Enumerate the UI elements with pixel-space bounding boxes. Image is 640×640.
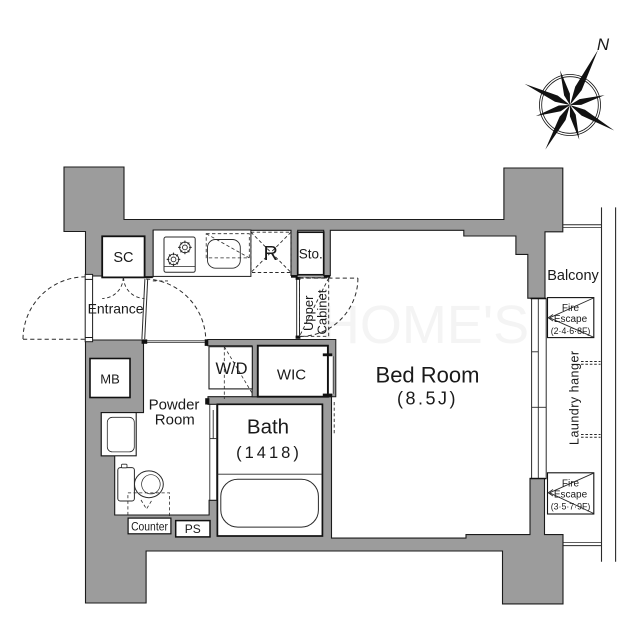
svg-text:Room: Room [155,412,195,429]
svg-text:(8.5J): (8.5J) [397,389,458,409]
svg-text:Escape: Escape [554,490,588,501]
svg-text:PS: PS [185,522,201,536]
svg-text:W/D: W/D [215,360,247,378]
svg-text:Counter: Counter [131,521,168,534]
svg-text:MB: MB [100,372,120,387]
svg-text:(1418): (1418) [236,444,302,462]
svg-text:Bath: Bath [247,416,289,439]
svg-text:SC: SC [113,250,133,266]
svg-text:HOME'S: HOME'S [321,295,529,355]
svg-text:Balcony: Balcony [547,268,599,284]
svg-text:(2·4·6·8F): (2·4·6·8F) [551,326,591,336]
svg-text:Laundry hanger: Laundry hanger [568,350,582,445]
svg-text:(3·5·7·9F): (3·5·7·9F) [551,502,591,512]
svg-text:R: R [263,243,277,265]
svg-text:Fire: Fire [562,303,580,314]
svg-text:Escape: Escape [554,314,588,325]
svg-text:Entrance: Entrance [88,301,144,317]
svg-text:WIC: WIC [277,367,306,384]
svg-text:Bed Room: Bed Room [376,363,480,388]
svg-text:Sto.: Sto. [299,247,323,262]
svg-text:Cabinet: Cabinet [315,289,330,334]
svg-text:N: N [597,35,610,54]
svg-text:Fire: Fire [562,479,580,490]
